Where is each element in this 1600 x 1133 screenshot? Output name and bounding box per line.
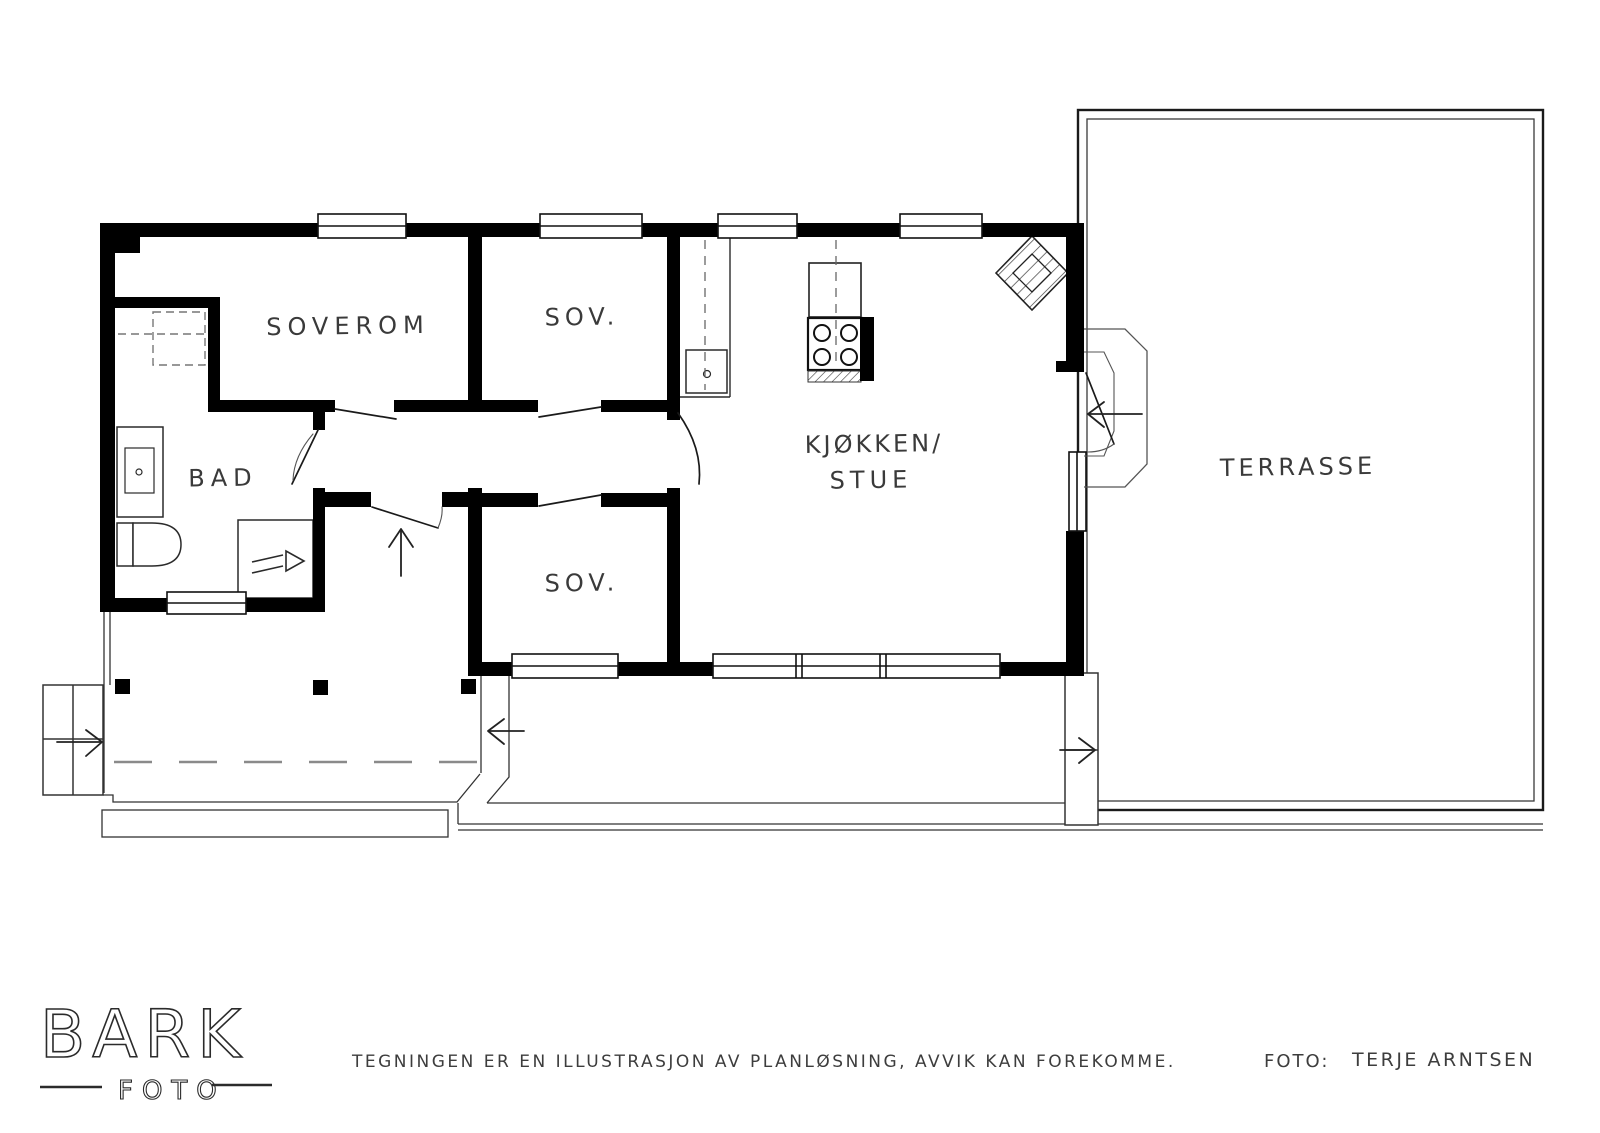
room-label-bad: BAD [188, 464, 258, 493]
shower-icon [238, 520, 313, 598]
photo-credit-label: FOTO: [1264, 1051, 1329, 1072]
kitchen-cabinet [809, 263, 861, 317]
vanity-sink-icon [117, 427, 163, 517]
room-label-sov-bottom: SOV. [544, 568, 619, 597]
deck-outline [102, 612, 1543, 837]
photo-credit-name: TERJE ARNTSEN [1352, 1049, 1535, 1071]
terrace-door-bay [1084, 329, 1147, 487]
logo-brand-text: BARK [40, 996, 248, 1073]
door-swings [292, 373, 1114, 528]
toilet-icon [117, 523, 181, 566]
floorplan-canvas: SOVEROM SOV. SOV. BAD KJØKKEN/ STUE TERR… [0, 0, 1600, 1133]
bark-foto-logo: BARK FOTO [38, 995, 288, 1110]
stove-icon [808, 318, 862, 382]
fireplace-icon [996, 236, 1068, 310]
room-label-kjokken: KJØKKEN/ [805, 429, 944, 459]
wardrobe-icon [118, 312, 205, 365]
room-label-terrasse: TERRASSE [1220, 452, 1377, 482]
room-label-sov-top: SOV. [544, 302, 619, 331]
stairs-left [43, 685, 103, 795]
kitchen-sink-icon [686, 350, 727, 393]
terrace-door-arrow [1088, 402, 1142, 427]
room-label-stue: STUE [829, 465, 912, 494]
room-label-soverom: SOVEROM [266, 311, 430, 341]
porch-posts [115, 679, 476, 695]
porch-arrow [488, 719, 524, 744]
disclaimer-text: TEGNINGEN ER EN ILLUSTRASJON AV PLANLØSN… [352, 1052, 1176, 1072]
entry-arrow [389, 529, 413, 576]
logo-sub-text: FOTO [118, 1076, 226, 1106]
floorplan-drawing [0, 0, 1600, 1133]
